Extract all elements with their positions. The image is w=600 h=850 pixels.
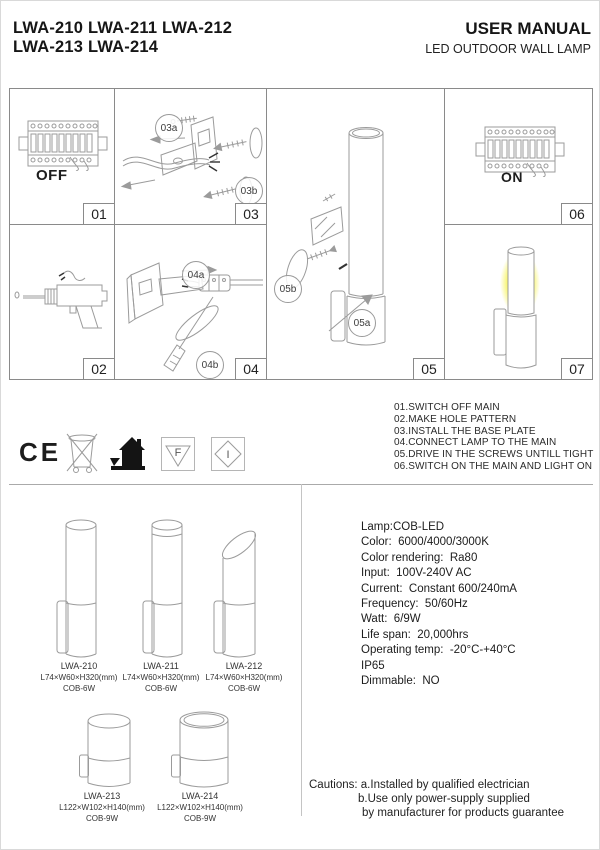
product-model: LWA-214 bbox=[152, 791, 248, 802]
panel-number-04: 04 bbox=[235, 358, 266, 379]
class-mark-icon: I bbox=[211, 437, 245, 471]
spec-line: Color rendering: Ra80 bbox=[361, 551, 517, 566]
product-size: L74×W60×H320(mm) bbox=[113, 672, 209, 683]
product-model: LWA-213 bbox=[54, 791, 150, 802]
spec-line: Input: 100V-240V AC bbox=[361, 566, 517, 581]
spec-line: IP65 bbox=[361, 659, 517, 674]
spec-line: Current: Constant 600/240mA bbox=[361, 582, 517, 597]
ce-mark-icon: CE bbox=[19, 437, 61, 468]
lamp-lit-illustration bbox=[445, 225, 592, 379]
installation-steps-grid: OFF 01 02 bbox=[9, 88, 593, 380]
instruction-line: 03.INSTALL THE BASE PLATE bbox=[394, 426, 593, 438]
caution-line: b.Use only power-supply supplied bbox=[358, 793, 584, 807]
step-panel-04: 04a 04b 04 bbox=[115, 225, 267, 380]
product-label-lwa211: LWA-211 L74×W60×H320(mm) COB-6W bbox=[113, 661, 209, 694]
house-mark-icon bbox=[109, 433, 149, 473]
step-label-03a: 03a bbox=[155, 114, 183, 142]
product-model: LWA-211 bbox=[113, 661, 209, 672]
product-drawing-lwa211 bbox=[142, 517, 188, 662]
class-mark-letter: I bbox=[226, 449, 229, 461]
step-label-05a: 05a bbox=[348, 309, 376, 337]
panel-number-01: 01 bbox=[83, 203, 114, 224]
caution-line: by manufacturer for products guarantee bbox=[362, 807, 584, 821]
spec-list: Lamp:COB-LED Color: 6000/4000/3000K Colo… bbox=[361, 520, 517, 689]
product-lamp: COB-9W bbox=[54, 813, 150, 824]
spec-line: Dimmable: NO bbox=[361, 674, 517, 689]
step-panel-07: 07 bbox=[445, 225, 593, 380]
step-panel-02: 02 bbox=[10, 225, 115, 380]
product-size: L122×W102×H140(mm) bbox=[152, 802, 248, 813]
product-label-lwa213: LWA-213 L122×W102×H140(mm) COB-9W bbox=[54, 791, 150, 824]
model-list-heading: LWA-210 LWA-211 LWA-212 LWA-213 LWA-214 bbox=[13, 19, 232, 57]
step-panel-01: OFF 01 bbox=[10, 89, 115, 225]
f-mark-letter: F bbox=[175, 447, 182, 459]
spec-line: Life span: 20,000hrs bbox=[361, 628, 517, 643]
product-lamp: COB-6W bbox=[113, 683, 209, 694]
product-model: LWA-212 bbox=[196, 661, 292, 672]
product-size: L122×W102×H140(mm) bbox=[54, 802, 150, 813]
instruction-line: 01.SWITCH OFF MAIN bbox=[394, 402, 593, 414]
spec-line: Color: 6000/4000/3000K bbox=[361, 535, 517, 550]
model-list-line2: LWA-213 LWA-214 bbox=[13, 38, 232, 57]
f-mark-icon: F bbox=[161, 437, 195, 471]
step-panel-05: 05b 05a 05 bbox=[267, 89, 445, 380]
caution-line: Cautions: a.Installed by qualified elect… bbox=[309, 779, 584, 793]
step-label-04a: 04a bbox=[182, 261, 210, 289]
title-block: USER MANUAL LED OUTDOOR WALL LAMP bbox=[425, 19, 591, 56]
step-panel-03: 03a 03b 03 bbox=[115, 89, 267, 225]
product-drawing-lwa210 bbox=[56, 517, 102, 662]
cautions-block: Cautions: a.Installed by qualified elect… bbox=[309, 779, 584, 820]
step-panel-06: ON 06 bbox=[445, 89, 593, 225]
panel-number-03: 03 bbox=[235, 203, 266, 224]
product-label-lwa214: LWA-214 L122×W102×H140(mm) COB-9W bbox=[152, 791, 248, 824]
step-label-04b: 04b bbox=[196, 351, 224, 379]
page-subtitle: LED OUTDOOR WALL LAMP bbox=[425, 42, 591, 56]
vertical-divider bbox=[301, 484, 302, 816]
instruction-line: 06.SWITCH ON THE MAIN AND LIGHT ON bbox=[394, 461, 593, 473]
spec-line: Operating temp: -20°C-+40°C bbox=[361, 643, 517, 658]
instruction-line: 05.DRIVE IN THE SCREWS UNTILL TIGHT bbox=[394, 449, 593, 461]
product-lamp: COB-9W bbox=[152, 813, 248, 824]
drill-illustration bbox=[14, 269, 110, 331]
panel-number-05: 05 bbox=[413, 358, 444, 379]
product-label-lwa212: LWA-212 L74×W60×H320(mm) COB-6W bbox=[196, 661, 292, 694]
spec-line: Lamp:COB-LED bbox=[361, 520, 517, 535]
panel-number-07: 07 bbox=[561, 358, 592, 379]
manual-page: LWA-210 LWA-211 LWA-212 LWA-213 LWA-214 … bbox=[0, 0, 600, 850]
product-drawing-lwa214 bbox=[171, 709, 231, 793]
step-label-03b: 03b bbox=[235, 177, 263, 205]
panel-number-02: 02 bbox=[83, 358, 114, 379]
product-lamp: COB-6W bbox=[196, 683, 292, 694]
product-drawing-lwa213 bbox=[79, 711, 133, 793]
spec-line: Frequency: 50/60Hz bbox=[361, 597, 517, 612]
breaker-on-label: ON bbox=[501, 169, 523, 185]
instruction-line: 02.MAKE HOLE PATTERN bbox=[394, 414, 593, 426]
page-title: USER MANUAL bbox=[425, 19, 591, 39]
spec-line: Watt: 6/9W bbox=[361, 612, 517, 627]
breaker-off-illustration bbox=[18, 117, 108, 171]
instruction-list: 01.SWITCH OFF MAIN 02.MAKE HOLE PATTERN … bbox=[394, 402, 593, 473]
weee-bin-icon bbox=[65, 431, 101, 475]
breaker-off-label: OFF bbox=[36, 167, 68, 184]
panel-number-06: 06 bbox=[561, 203, 592, 224]
product-size: L74×W60×H320(mm) bbox=[196, 672, 292, 683]
model-list-line1: LWA-210 LWA-211 LWA-212 bbox=[13, 19, 232, 38]
product-drawing-lwa212 bbox=[211, 517, 263, 662]
instruction-line: 04.CONNECT LAMP TO THE MAIN bbox=[394, 437, 593, 449]
step-label-05b: 05b bbox=[274, 275, 302, 303]
